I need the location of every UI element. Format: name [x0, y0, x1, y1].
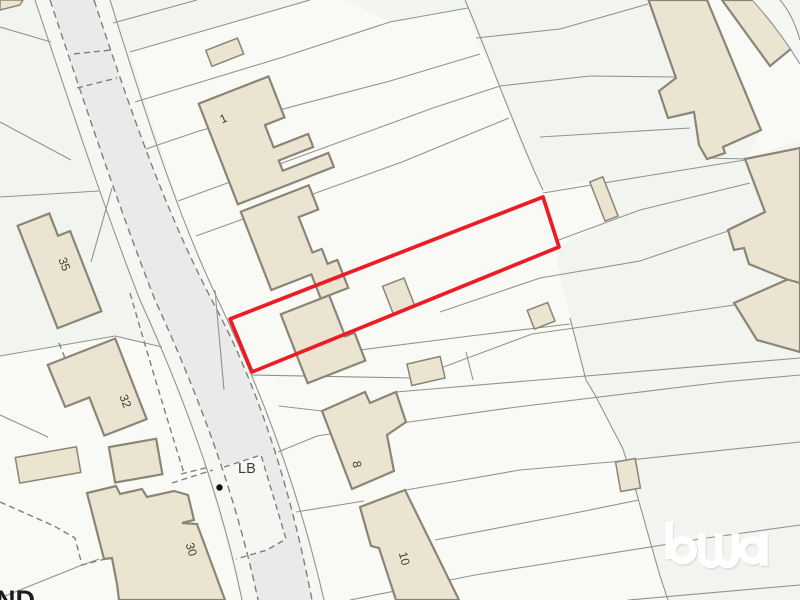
svg-text:ND: ND: [0, 585, 35, 600]
svg-text:LB: LB: [238, 461, 256, 477]
